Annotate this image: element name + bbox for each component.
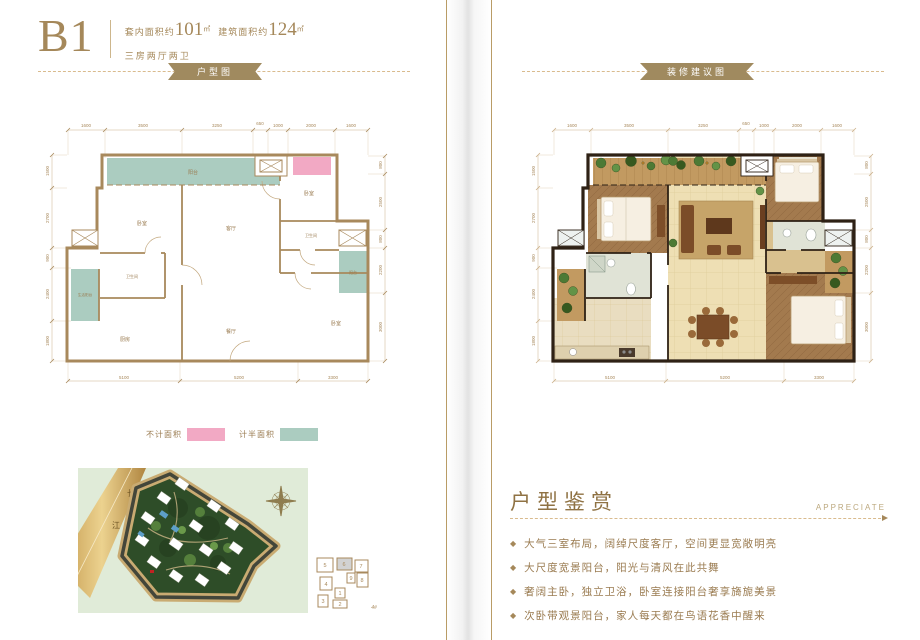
appreciation-section: 户型鉴赏 APPRECIATE ◆ 大气三室布局，阔绰尺度客厅，空间更显宽敞明亮… bbox=[510, 486, 886, 633]
location-marker bbox=[150, 570, 154, 573]
label-kitchen: 厨房 bbox=[120, 336, 130, 343]
svg-text:2700: 2700 bbox=[531, 212, 536, 223]
svg-text:1500: 1500 bbox=[45, 165, 50, 176]
label-bedroom-3: 卧室 bbox=[331, 320, 341, 327]
svg-text:4: 4 bbox=[324, 582, 327, 588]
svg-text:650: 650 bbox=[742, 121, 750, 126]
svg-text:800: 800 bbox=[864, 161, 869, 169]
svg-text:3500: 3500 bbox=[624, 123, 635, 128]
area-legend: 不计面积 计半面积 bbox=[146, 428, 318, 441]
bullet-item: ◆ 奢阔主卧，独立卫浴，卧室连接阳台奢享旖旎美景 bbox=[510, 585, 886, 599]
svg-text:2500: 2500 bbox=[378, 196, 383, 207]
svg-text:6: 6 bbox=[342, 562, 345, 568]
svg-text:5100: 5100 bbox=[605, 375, 616, 380]
svg-text:1600: 1600 bbox=[346, 123, 357, 128]
bullet-item: ◆ 大气三室布局，阔绰尺度客厅，空间更显宽敞明亮 bbox=[510, 537, 886, 551]
brochure-page: { "header": { "unit_code": "B1", "inner_… bbox=[0, 0, 920, 640]
svg-text:650: 650 bbox=[256, 121, 264, 126]
svg-text:3000: 3000 bbox=[864, 321, 869, 332]
appreciation-subtitle: APPRECIATE bbox=[816, 503, 886, 512]
area-line: 套内面积约101㎡ 建筑面积约124㎡ bbox=[125, 19, 305, 41]
svg-text:9: 9 bbox=[349, 576, 352, 582]
svg-text:3300: 3300 bbox=[814, 375, 825, 380]
label-bath-1: 卫生间 bbox=[126, 273, 138, 279]
inner-area-label: 套内面积约 bbox=[125, 27, 175, 37]
svg-text:900: 900 bbox=[531, 254, 536, 262]
unit-code: B1 bbox=[38, 10, 94, 62]
build-area-unit: ㎡ bbox=[297, 26, 305, 33]
svg-text:3250: 3250 bbox=[698, 123, 709, 128]
label-bedroom-2: 卧室 bbox=[304, 190, 314, 197]
svg-text:5200: 5200 bbox=[234, 375, 245, 380]
building-key-plan: 5 6 7 4 9 8 1 3 2 4# bbox=[306, 547, 394, 621]
header: B1 套内面积约101㎡ 建筑面积约124㎡ 三房两厅两卫 bbox=[38, 10, 305, 62]
label-bath-2: 卫生间 bbox=[305, 232, 317, 238]
diamond-icon: ◆ bbox=[510, 585, 516, 599]
label-balcony-right: 阳台 bbox=[349, 269, 357, 275]
svg-text:1: 1 bbox=[338, 591, 341, 597]
svg-text:3: 3 bbox=[321, 599, 324, 605]
svg-text:1600: 1600 bbox=[832, 123, 843, 128]
svg-text:1500: 1500 bbox=[531, 165, 536, 176]
svg-text:900: 900 bbox=[45, 254, 50, 262]
legend-label-no-area: 不计面积 bbox=[146, 429, 182, 440]
bullet-item: ◆ 次卧带观景阳台，家人每天都在鸟语花香中醒来 bbox=[510, 609, 886, 623]
label-life-balcony: 生活阳台 bbox=[78, 292, 93, 297]
label-balcony: 阳台 bbox=[188, 169, 198, 176]
svg-text:5: 5 bbox=[323, 563, 326, 569]
room-labels: 阳台 卧室 客厅 卧室 卫生间 卫生间 生活阳台 阳台 餐厅 厨房 卧室 bbox=[78, 169, 357, 343]
svg-text:1000: 1000 bbox=[759, 123, 770, 128]
legend-swatch-teal bbox=[280, 428, 318, 441]
header-divider bbox=[110, 20, 111, 58]
appreciation-bullets: ◆ 大气三室布局，阔绰尺度客厅，空间更显宽敞明亮 ◆ 大尺度宽景阳台，阳光与清风… bbox=[510, 537, 886, 623]
legend-label-half-area: 计半面积 bbox=[239, 429, 275, 440]
svg-text:3000: 3000 bbox=[378, 321, 383, 332]
label-bedroom-1: 卧室 bbox=[137, 220, 147, 227]
svg-text:1800: 1800 bbox=[45, 335, 50, 346]
diamond-icon: ◆ bbox=[510, 537, 516, 551]
svg-text:800: 800 bbox=[378, 161, 383, 169]
legend-item-no-area: 不计面积 bbox=[146, 428, 225, 441]
bullet-text: 大尺度宽景阳台，阳光与清风在此共舞 bbox=[524, 561, 720, 575]
header-text: 套内面积约101㎡ 建筑面积约124㎡ 三房两厅两卫 bbox=[125, 10, 305, 62]
legend-item-half-area: 计半面积 bbox=[239, 428, 318, 441]
no-area-zone bbox=[293, 157, 331, 175]
svg-text:2200: 2200 bbox=[864, 264, 869, 275]
svg-text:1600: 1600 bbox=[81, 123, 92, 128]
svg-text:1000: 1000 bbox=[273, 123, 284, 128]
site-plan: 长 江 bbox=[78, 468, 308, 613]
inner-area-value: 101 bbox=[175, 19, 204, 40]
diamond-icon: ◆ bbox=[510, 609, 516, 623]
svg-text:2400: 2400 bbox=[45, 288, 50, 299]
page-fold bbox=[446, 0, 492, 640]
svg-text:7: 7 bbox=[359, 564, 362, 570]
svg-text:800: 800 bbox=[378, 235, 383, 243]
bullet-text: 次卧带观景阳台，家人每天都在鸟语花香中醒来 bbox=[524, 609, 766, 623]
svg-text:2: 2 bbox=[338, 602, 341, 608]
label-dining: 餐厅 bbox=[226, 328, 236, 335]
build-area-value: 124 bbox=[268, 19, 297, 40]
svg-text:2500: 2500 bbox=[864, 196, 869, 207]
svg-text:1600: 1600 bbox=[567, 123, 578, 128]
svg-text:2000: 2000 bbox=[306, 123, 317, 128]
svg-text:3500: 3500 bbox=[138, 123, 149, 128]
outer-walls bbox=[67, 155, 368, 361]
keyplan-building-label: 4# bbox=[371, 605, 377, 611]
svg-text:3300: 3300 bbox=[328, 375, 339, 380]
svg-text:2700: 2700 bbox=[45, 212, 50, 223]
bullet-item: ◆ 大尺度宽景阳台，阳光与清风在此共舞 bbox=[510, 561, 886, 575]
appreciation-title: 户型鉴赏 bbox=[510, 490, 618, 514]
legend-swatch-pink bbox=[187, 428, 225, 441]
ribbon-decoration: 装修建议图 bbox=[640, 63, 754, 80]
svg-text:800: 800 bbox=[864, 235, 869, 243]
floorplan-decorated: 1600 3500 3250 650 1000 2000 1600 5100 5… bbox=[531, 113, 911, 398]
svg-text:8: 8 bbox=[360, 578, 363, 584]
svg-text:2400: 2400 bbox=[531, 288, 536, 299]
svg-text:3250: 3250 bbox=[212, 123, 223, 128]
svg-text:5100: 5100 bbox=[119, 375, 130, 380]
appreciation-rule bbox=[510, 518, 886, 519]
layout-desc: 三房两厅两卫 bbox=[125, 49, 305, 62]
floorplan-technical: 1600 3500 3250 650 1000 2000 1600 5100 5… bbox=[45, 113, 425, 398]
label-living: 客厅 bbox=[226, 225, 236, 232]
svg-text:2200: 2200 bbox=[378, 264, 383, 275]
svg-text:1800: 1800 bbox=[531, 335, 536, 346]
diamond-icon: ◆ bbox=[510, 561, 516, 575]
svg-text:5200: 5200 bbox=[720, 375, 731, 380]
build-area-label: 建筑面积约 bbox=[218, 27, 268, 37]
bullet-text: 大气三室布局，阔绰尺度客厅，空间更显宽敞明亮 bbox=[524, 537, 777, 551]
appreciation-header: 户型鉴赏 APPRECIATE bbox=[510, 486, 886, 514]
bullet-text: 奢阔主卧，独立卫浴，卧室连接阳台奢享旖旎美景 bbox=[524, 585, 777, 599]
svg-text:2000: 2000 bbox=[792, 123, 803, 128]
inner-area-unit: ㎡ bbox=[203, 26, 211, 33]
ribbon-floorplan: 户型图 bbox=[168, 63, 262, 80]
river-char-2: 江 bbox=[112, 521, 120, 530]
